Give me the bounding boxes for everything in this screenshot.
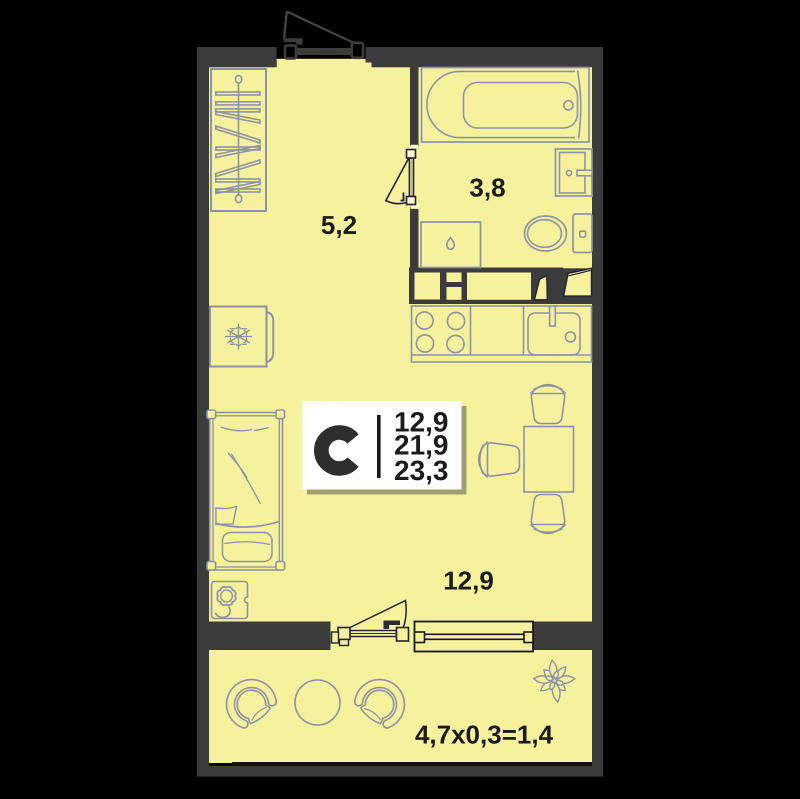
- svg-text:4,7x0,3=1,4: 4,7x0,3=1,4: [415, 720, 554, 750]
- svg-text:12,9: 12,9: [443, 566, 494, 596]
- svg-text:5,2: 5,2: [321, 210, 357, 240]
- svg-text:23,3: 23,3: [394, 455, 449, 486]
- svg-text:3,8: 3,8: [469, 173, 505, 203]
